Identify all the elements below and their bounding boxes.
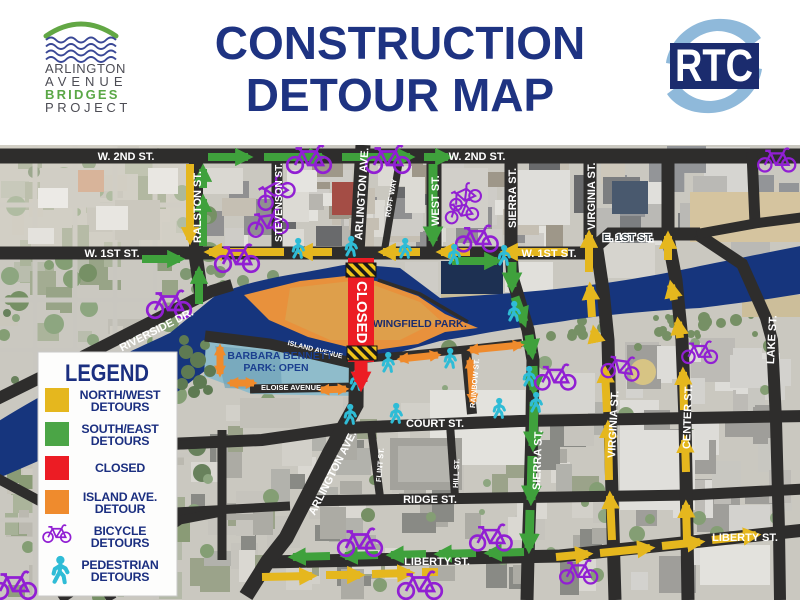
svg-text:CLOSED: CLOSED	[95, 461, 145, 475]
svg-text:DETOURS: DETOURS	[91, 570, 150, 584]
svg-text:E. 1ST ST.: E. 1ST ST.	[603, 232, 653, 244]
svg-text:CENTER ST.: CENTER ST.	[681, 385, 695, 450]
svg-text:W. 1ST ST.: W. 1ST ST.	[84, 248, 139, 260]
svg-text:LEGEND: LEGEND	[65, 360, 149, 387]
svg-text:DETOUR: DETOUR	[95, 502, 146, 516]
svg-text:CLOSED: CLOSED	[353, 281, 370, 344]
svg-text:LIBERTY ST.: LIBERTY ST.	[712, 532, 778, 544]
svg-text:W. 2ND ST.: W. 2ND ST.	[98, 151, 155, 163]
svg-text:RIDGE ST.: RIDGE ST.	[403, 494, 457, 506]
svg-text:SIERRA ST.: SIERRA ST.	[507, 168, 519, 228]
svg-text:PARK: OPEN: PARK: OPEN	[243, 362, 308, 374]
svg-text:DETOURS: DETOURS	[91, 536, 150, 550]
svg-text:COURT ST.: COURT ST.	[406, 418, 464, 430]
svg-text:W. 2ND ST.: W. 2ND ST.	[449, 151, 506, 163]
svg-text:BARBARA BENNETT: BARBARA BENNETT	[227, 350, 333, 362]
svg-text:ELOISE AVENUE: ELOISE AVENUE	[261, 383, 321, 392]
svg-text:STEVENSON ST.: STEVENSON ST.	[274, 163, 285, 242]
svg-text:RTC: RTC	[675, 40, 753, 91]
svg-text:VIRGINIA ST.: VIRGINIA ST.	[586, 163, 598, 230]
svg-text:RALSTON ST.: RALSTON ST.	[192, 171, 204, 243]
svg-text:WINGFIELD PARK:: WINGFIELD PARK:	[373, 318, 467, 330]
svg-text:WEST ST.: WEST ST.	[430, 175, 442, 226]
svg-text:W. 1ST ST.: W. 1ST ST.	[521, 248, 576, 260]
svg-text:DETOURS: DETOURS	[91, 434, 150, 448]
svg-text:HILL ST.: HILL ST.	[451, 458, 462, 488]
svg-text:LAKE ST.: LAKE ST.	[765, 315, 780, 364]
svg-text:SIERRA ST.: SIERRA ST.	[531, 430, 545, 490]
svg-text:LIBERTY ST.: LIBERTY ST.	[404, 556, 470, 568]
svg-text:DETOURS: DETOURS	[91, 400, 150, 414]
